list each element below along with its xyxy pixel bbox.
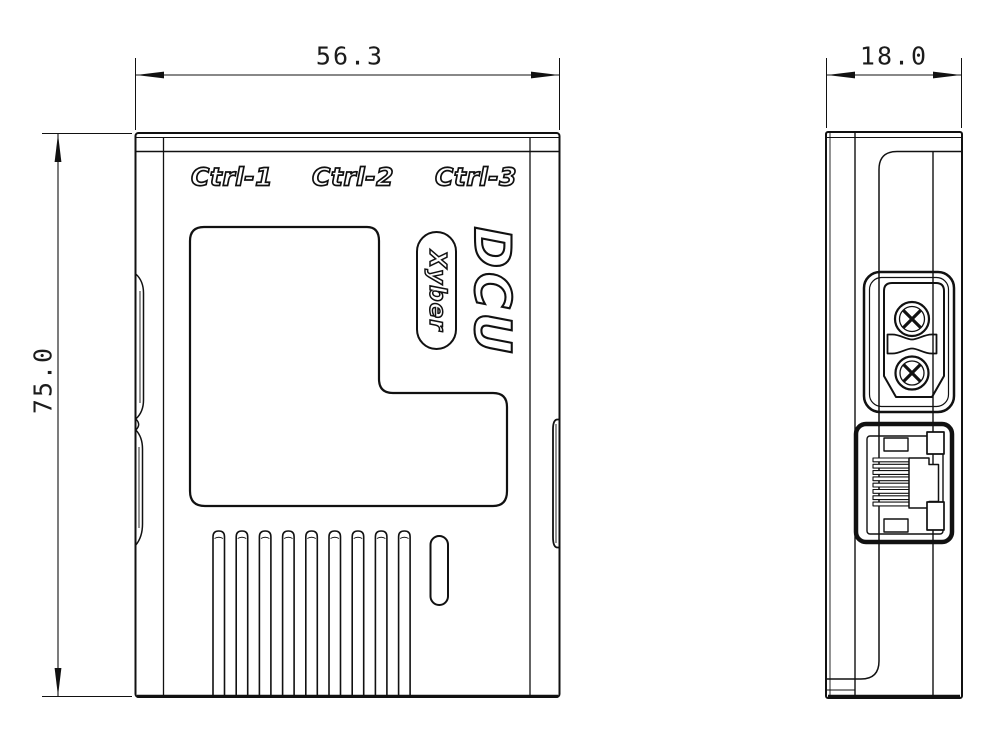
label-recess-panel xyxy=(190,227,507,506)
vent-ribs xyxy=(213,531,410,698)
power-connector xyxy=(864,272,954,412)
side-view xyxy=(826,132,962,698)
power-connector-bezel-outer xyxy=(864,272,954,412)
technical-drawing: 56.3 75.0 18.0 Ctrl-1 Ctrl-2 Ctrl-3 DCU … xyxy=(0,0,1000,737)
rj45-key-bottom xyxy=(884,519,908,532)
power-pin-bottom xyxy=(896,357,929,390)
side-recess-panel xyxy=(827,152,962,680)
rj45-latch-channel xyxy=(909,458,939,508)
side-depth-dimension-text: 18.0 xyxy=(860,42,928,71)
port-label-ctrl2: Ctrl-2 xyxy=(312,163,394,192)
rj45-key-top xyxy=(884,438,908,451)
ethernet-connector xyxy=(856,424,952,542)
dimension-front-height xyxy=(42,134,132,697)
rj45-tab-bottom-right xyxy=(927,502,944,530)
front-width-dimension-text: 56.3 xyxy=(316,42,384,71)
power-pin-top xyxy=(895,302,929,336)
side-body-outline xyxy=(826,132,962,698)
brand-name: Xyber xyxy=(424,250,450,331)
port-label-ctrl3: Ctrl-3 xyxy=(435,163,517,192)
product-logo: DCU xyxy=(463,227,521,358)
left-latch-tabs xyxy=(136,274,144,545)
front-view xyxy=(136,133,560,698)
drawing-lineart xyxy=(0,0,1000,737)
front-height-dimension-text: 75.0 xyxy=(29,346,58,414)
button-slot xyxy=(431,536,449,605)
brand-badge: Xyber xyxy=(416,231,457,350)
front-body-outline xyxy=(136,133,560,697)
power-divider xyxy=(888,335,937,354)
port-label-ctrl1: Ctrl-1 xyxy=(191,163,273,192)
rj45-tab-top-right xyxy=(927,432,944,454)
